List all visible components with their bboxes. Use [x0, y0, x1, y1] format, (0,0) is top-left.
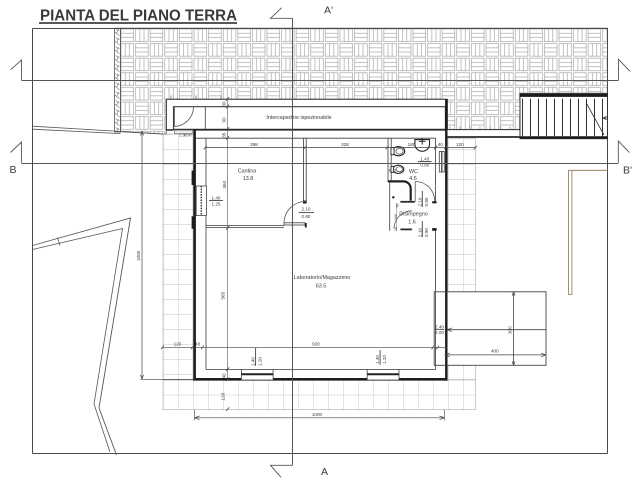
svg-text:0.80: 0.80 — [424, 197, 429, 206]
svg-text:40: 40 — [221, 373, 226, 379]
svg-text:PIANTA DEL PIANO TERRA: PIANTA DEL PIANO TERRA — [40, 8, 237, 25]
svg-text:B': B' — [623, 165, 632, 177]
svg-text:Disimpegno: Disimpegno — [399, 212, 427, 218]
svg-text:1.20: 1.20 — [382, 355, 387, 364]
svg-text:25: 25 — [393, 169, 397, 173]
svg-text:180: 180 — [408, 142, 416, 147]
svg-text:400: 400 — [491, 349, 499, 354]
svg-text:1.25: 1.25 — [212, 202, 221, 207]
svg-text:1.20: 1.20 — [258, 357, 263, 366]
svg-text:565: 565 — [221, 291, 226, 299]
svg-text:40: 40 — [195, 342, 201, 347]
svg-text:Laboratorio/Magazzeno: Laboratorio/Magazzeno — [294, 275, 351, 281]
svg-text:A: A — [321, 466, 328, 478]
svg-text:2.40: 2.40 — [435, 324, 444, 329]
svg-text:63.5: 63.5 — [316, 284, 327, 290]
svg-text:13.8: 13.8 — [243, 176, 254, 182]
svg-text:1.6: 1.6 — [408, 220, 416, 226]
svg-text:328: 328 — [341, 142, 349, 147]
svg-text:4.5: 4.5 — [409, 176, 417, 182]
svg-text:920: 920 — [312, 342, 320, 347]
svg-text:Intercapedine ispezionabile: Intercapedine ispezionabile — [266, 115, 331, 121]
svg-text:120: 120 — [221, 392, 226, 400]
svg-text:1.40: 1.40 — [375, 355, 380, 364]
svg-text:398: 398 — [250, 142, 258, 147]
svg-text:1.40: 1.40 — [251, 357, 256, 366]
svg-text:Cantina: Cantina — [238, 169, 257, 175]
svg-text:120: 120 — [456, 142, 464, 147]
svg-text:B: B — [10, 164, 17, 176]
svg-text:35: 35 — [221, 132, 226, 138]
svg-text:0.90: 0.90 — [424, 228, 429, 237]
svg-text:360: 360 — [222, 180, 227, 188]
svg-text:0.80: 0.80 — [302, 214, 311, 219]
svg-text:90: 90 — [221, 117, 226, 123]
svg-text:1.40: 1.40 — [420, 157, 429, 162]
svg-text:WC: WC — [409, 169, 418, 175]
svg-text:2.10: 2.10 — [302, 207, 311, 212]
svg-text:3.00: 3.00 — [435, 330, 444, 335]
svg-text:0.90: 0.90 — [185, 134, 192, 138]
svg-text:2.10: 2.10 — [418, 197, 423, 206]
svg-text:30: 30 — [221, 101, 226, 107]
svg-text:1000: 1000 — [136, 250, 141, 261]
svg-text:1000: 1000 — [312, 412, 323, 417]
svg-text:90: 90 — [395, 204, 399, 208]
svg-text:A': A' — [324, 5, 333, 17]
svg-text:2.10: 2.10 — [418, 228, 423, 237]
svg-text:120: 120 — [174, 342, 182, 347]
svg-text:45: 45 — [389, 169, 393, 173]
svg-text:40: 40 — [438, 142, 444, 147]
svg-text:1.40: 1.40 — [212, 196, 221, 201]
